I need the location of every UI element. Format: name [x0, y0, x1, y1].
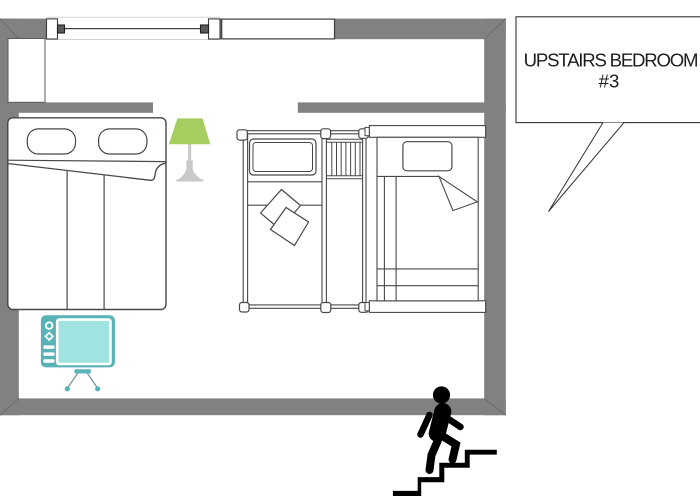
svg-text:#3: #3 [599, 71, 620, 92]
svg-text:UPSTAIRS BEDROOM: UPSTAIRS BEDROOM [524, 50, 698, 71]
